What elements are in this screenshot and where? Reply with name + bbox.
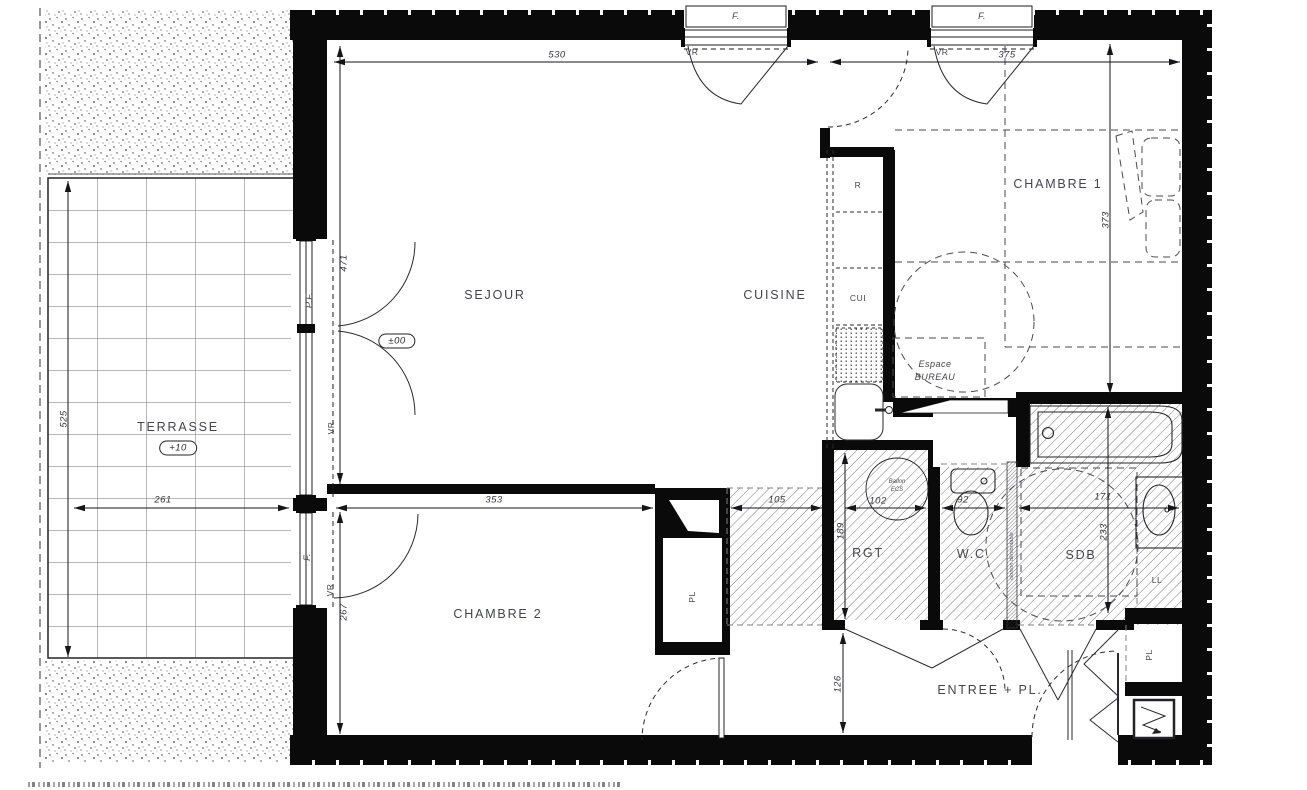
french-door-label: P.F.: [304, 292, 314, 308]
room-label-sdb: SDB: [1065, 548, 1096, 562]
walls: [290, 5, 1212, 765]
room-label-rgt: RGT: [852, 546, 884, 560]
room-label-chambre1: CHAMBRE 1: [1013, 177, 1102, 191]
casement-swing-2: [934, 46, 1034, 104]
dim-sdb-width: 171: [1094, 492, 1111, 503]
dim-terrasse-depth: 525: [59, 410, 70, 427]
door-leaf-chambre2: [719, 658, 724, 738]
casement-swing-1: [688, 46, 788, 104]
wall-rgt-left: [822, 440, 834, 630]
wall-left-of-bathtub: [1016, 404, 1030, 467]
espace-bureau-label-2: BUREAU: [915, 372, 956, 382]
dim-sejour-width: 530: [548, 50, 565, 61]
shutter-label-chambre2: VR: [325, 584, 335, 597]
shutter-label-sejour: VR: [326, 422, 336, 435]
wall-kitchen-corner-h: [820, 147, 894, 157]
level-badge-interior: ±00: [378, 334, 415, 349]
floor-plan-drawing: [0, 0, 1307, 790]
espace-bureau-label-1: Espace: [918, 359, 951, 369]
terrace-tiles: [48, 178, 295, 658]
dim-chambre2-depth: 267: [339, 603, 350, 620]
entry-door-swing: [1032, 651, 1118, 737]
hall-hatch: [727, 488, 822, 625]
shutter-label-top-right: VR: [936, 47, 949, 57]
dim-sejour-depth: 471: [339, 254, 350, 271]
dim-hall-width: 105: [768, 495, 785, 506]
exterior-area: [40, 8, 295, 768]
wall-rgt-top: [822, 440, 930, 450]
truncated-caption-strip: [28, 782, 620, 787]
planting-texture-bottom: [45, 660, 295, 762]
window-label-chambre2: F.: [302, 553, 312, 561]
door-swing-chambre2: [642, 658, 724, 740]
dim-chambre2-width: 353: [485, 495, 502, 506]
room-label-entree: ENTREE + PL.: [937, 683, 1042, 697]
clearance-circle-chambre1: [894, 252, 1034, 392]
window-swing-chambre2: [334, 514, 418, 598]
removable-partition-label: cloison démontable: [1009, 532, 1015, 579]
bedside-item: [1116, 131, 1143, 220]
washing-machine-label: LL: [1152, 575, 1162, 585]
wall-above-bathtub: [1016, 392, 1184, 404]
planting-texture-top: [45, 10, 295, 175]
dim-rgt-depth: 189: [836, 522, 847, 539]
wall-ll-divider: [1125, 608, 1185, 624]
dim-wc-width: 92: [957, 495, 969, 506]
dim-sdb-depth: 233: [1099, 523, 1110, 540]
window-label-top-right: F.: [978, 11, 986, 21]
room-label-sejour: SEJOUR: [464, 288, 526, 302]
dim-entree-depth: 126: [833, 675, 844, 692]
sdb-hatch: [1017, 404, 1182, 625]
door-swing-wc: [943, 629, 1005, 691]
folding-door-pl: [1084, 630, 1118, 742]
cooktop-label: CUI: [850, 293, 866, 303]
wall-rgt-right: [928, 440, 940, 630]
bed-pillow-1: [1142, 138, 1180, 196]
bed-pillow-2: [1146, 200, 1180, 257]
shutter-label-top-left: VR: [686, 47, 699, 57]
room-label-terrasse: TERRASSE: [137, 420, 219, 434]
kitchen-sink: [835, 384, 883, 440]
fridge-label: R: [855, 180, 862, 190]
dim-chambre1-depth: 373: [1101, 211, 1112, 228]
door-rgt: [845, 629, 1003, 668]
room-label-cuisine: CUISINE: [743, 288, 806, 302]
dishwasher: [836, 328, 883, 382]
room-label-wc: W.C.: [957, 547, 991, 561]
floor-plan-canvas: SEJOUR CUISINE CHAMBRE 1 CHAMBRE 2 TERRA…: [0, 0, 1307, 790]
wall-cuisine-chambre1: [883, 150, 895, 402]
window-label-top-left: F.: [732, 11, 740, 21]
rgt-hatch: [834, 450, 928, 620]
door-swing-cuisine: [828, 47, 908, 127]
level-badge-terrasse: +10: [159, 441, 197, 456]
dim-rgt-width: 102: [869, 496, 886, 507]
closet-chambre2-label: PL: [687, 591, 697, 602]
dim-chambre1-width: 375: [998, 50, 1015, 61]
french-door-swing-top: [338, 242, 415, 326]
room-label-chambre2: CHAMBRE 2: [453, 607, 542, 621]
closet-entree-label: PL: [1144, 649, 1154, 660]
water-heater-label-2: ECS: [891, 487, 903, 493]
water-heater-label-1: Ballon: [889, 479, 906, 485]
dim-terrasse-width: 261: [154, 495, 171, 506]
wall-sejour-chambre2: [327, 484, 655, 494]
wall-pl-divider: [1125, 682, 1185, 696]
